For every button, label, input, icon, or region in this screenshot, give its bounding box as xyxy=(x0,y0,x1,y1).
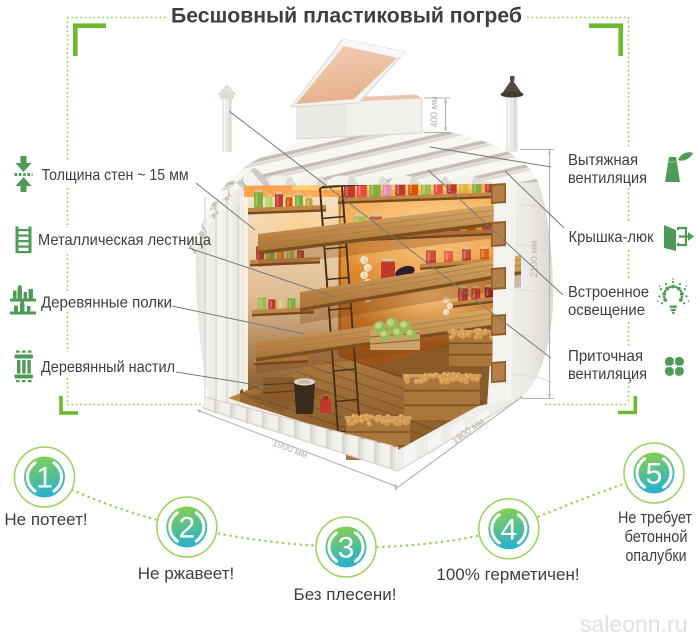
svg-text:100% герметичен!: 100% герметичен! xyxy=(436,565,579,584)
svg-text:освещение: освещение xyxy=(568,302,645,319)
svg-text:Вытяжная: Вытяжная xyxy=(568,152,638,169)
svg-text:Деревянные полки: Деревянные полки xyxy=(41,295,172,312)
svg-text:Крышка-люк: Крышка-люк xyxy=(569,229,655,246)
svg-text:бетонной: бетонной xyxy=(625,527,688,546)
svg-text:Металлическая лестница: Металлическая лестница xyxy=(38,232,211,249)
svg-text:Встроенное: Встроенное xyxy=(568,284,649,301)
svg-text:5: 5 xyxy=(646,458,663,491)
svg-text:saleonn.ru: saleonn.ru xyxy=(580,611,687,637)
svg-text:Бесшовный пластиковый погреб: Бесшовный пластиковый погреб xyxy=(171,5,522,28)
svg-text:Не ржавеет!: Не ржавеет! xyxy=(138,564,234,583)
svg-text:3: 3 xyxy=(338,532,355,565)
svg-text:Толщина стен ~ 15 мм: Толщина стен ~ 15 мм xyxy=(42,167,189,184)
svg-text:1900 мм: 1900 мм xyxy=(271,438,309,461)
svg-text:4: 4 xyxy=(500,513,517,546)
svg-text:опалубки: опалубки xyxy=(626,546,687,565)
svg-text:Без плесени!: Без плесени! xyxy=(294,585,397,604)
svg-text:1: 1 xyxy=(36,462,53,495)
svg-text:Не потеет!: Не потеет! xyxy=(4,510,87,529)
svg-text:400 мм: 400 мм xyxy=(429,96,440,128)
svg-text:вентиляция: вентиляция xyxy=(568,170,647,187)
svg-text:Приточная: Приточная xyxy=(568,348,643,365)
svg-text:Деревянный настил: Деревянный настил xyxy=(41,359,175,376)
svg-text:2: 2 xyxy=(178,512,195,545)
svg-text:вентиляция: вентиляция xyxy=(568,366,647,383)
svg-text:Не требует: Не требует xyxy=(618,508,692,527)
